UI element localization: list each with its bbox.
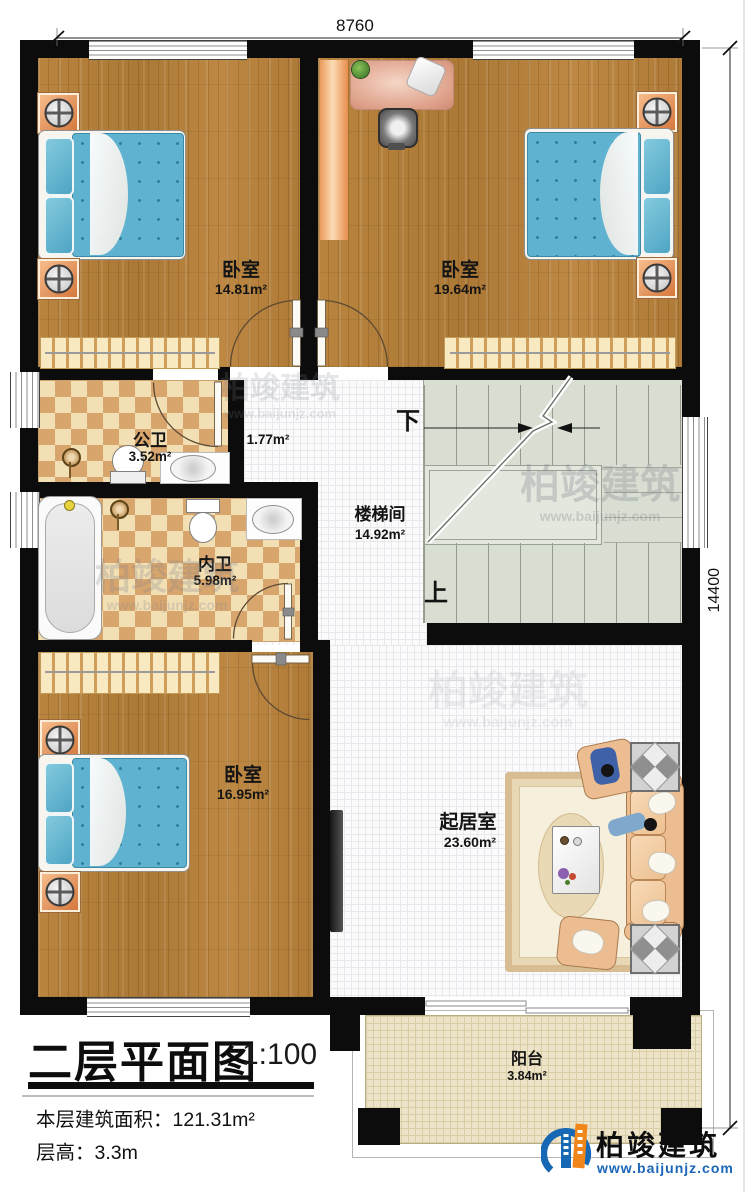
dimension-width: 8760 (336, 16, 374, 36)
flowers-icon (558, 868, 569, 879)
room-area-stairwell: 14.92m² (355, 528, 405, 542)
sink (170, 455, 216, 482)
wall (630, 997, 697, 1015)
stair-side-flight (604, 465, 682, 543)
nightstand (637, 258, 677, 298)
stairwell-area (423, 380, 683, 623)
room-label-public-bath: 公卫 (133, 432, 167, 449)
shower-head-icon (62, 448, 81, 467)
nightstand (637, 92, 677, 132)
side-table-top (630, 924, 681, 975)
room-label-bedroom3: 卧室 (224, 766, 262, 785)
brand-website: www.baijunjz.com (597, 1160, 734, 1176)
shower-head-icon (110, 500, 129, 519)
wardrobe-rail (45, 671, 216, 673)
floor-area-label: 本层建筑面积： (36, 1109, 173, 1131)
window (473, 40, 634, 60)
room-area-bedroom1: 14.81m² (215, 282, 267, 296)
lamp-icon (643, 98, 672, 127)
bathtub-basin (45, 503, 95, 633)
lamp-icon (46, 878, 75, 907)
sink (252, 505, 294, 534)
wardrobe-rail (450, 352, 671, 354)
window (682, 417, 708, 548)
wall (633, 1015, 691, 1049)
bed-pillow (44, 762, 74, 814)
cup-icon (560, 836, 569, 845)
wall (300, 482, 318, 652)
floor-height-value: 3.3m (95, 1142, 138, 1164)
wall (310, 640, 330, 652)
drawing-scale: 1:100 (242, 1038, 317, 1072)
shower-hose (117, 514, 119, 530)
room-label-inner-bath: 内卫 (198, 556, 232, 573)
lamp-icon (643, 264, 672, 293)
shower-hose (69, 462, 71, 478)
bed-mattress (72, 133, 184, 257)
wall (20, 640, 252, 652)
wall (300, 58, 318, 380)
side-table (630, 924, 680, 974)
brand-logo-icon (541, 1118, 593, 1188)
room-area-hallway: 1.77m² (247, 433, 290, 447)
room-label-stairwell: 楼梯间 (355, 506, 406, 523)
person-head (644, 818, 657, 831)
wall (358, 1108, 400, 1145)
floor-height-row: 层高：3.3m (36, 1136, 138, 1165)
bed-pillow (642, 137, 672, 196)
stair-landing (424, 465, 602, 545)
chair-base (388, 143, 405, 150)
stair-up-label: 上 (424, 582, 448, 606)
brand-name: 柏竣建筑 (596, 1124, 720, 1164)
wall (313, 652, 330, 997)
wall (20, 997, 87, 1015)
room-area-living: 23.60m² (444, 835, 496, 849)
wall (330, 997, 425, 1015)
wardrobe (40, 652, 220, 694)
bathtub-faucet-icon (64, 500, 75, 511)
lamp-icon (46, 726, 75, 755)
nightstand (38, 93, 79, 133)
room-area-balcony: 3.84m² (507, 1070, 547, 1083)
toilet-tank (110, 471, 146, 484)
side-table (630, 742, 680, 792)
title-rule-thick (28, 1082, 314, 1089)
bed-pillow (44, 137, 74, 196)
computer-chair (378, 108, 418, 148)
room-area-inner-bath: 5.98m² (194, 574, 237, 588)
floorplan-sheet: 卧室 14.81m² 卧室 19.64m² 公卫 3.52m² 1.77m² 内… (0, 0, 750, 1192)
tv (330, 810, 343, 932)
room-area-bedroom2: 19.64m² (434, 282, 486, 296)
wardrobe-rail (45, 352, 216, 354)
person-head (601, 764, 614, 777)
bed-pillow (44, 814, 74, 866)
wall (250, 997, 330, 1015)
room-area-bedroom3: 16.95m² (217, 787, 269, 801)
floor-area-value: 121.31m² (173, 1109, 255, 1131)
window (10, 492, 40, 548)
window (10, 372, 40, 428)
bed-pillow (642, 196, 672, 255)
room-label-balcony: 阳台 (511, 1052, 543, 1068)
bed-pillow (44, 196, 74, 255)
plant-icon (352, 61, 369, 78)
wardrobe (40, 337, 220, 369)
room-area-public-bath: 3.52m² (129, 450, 172, 464)
window (87, 997, 250, 1017)
cabinet (320, 60, 348, 240)
stair-down-label: 下 (396, 410, 420, 434)
wall (427, 623, 682, 645)
dimension-height: 14400 (706, 568, 724, 613)
floor-height-label: 层高： (36, 1142, 95, 1164)
title-rule-thin (22, 1095, 314, 1097)
room-label-bedroom1: 卧室 (222, 261, 260, 280)
wall (228, 380, 244, 482)
room-label-living: 起居室 (439, 813, 496, 832)
room-label-bedroom2: 卧室 (441, 261, 479, 280)
floor-area-row: 本层建筑面积：121.31m² (36, 1103, 255, 1132)
lamp-icon (44, 99, 73, 128)
toilet-tank (186, 499, 220, 513)
wall (330, 1015, 360, 1051)
stair-lower-flight (424, 543, 683, 623)
side-table-top (630, 742, 681, 793)
nightstand (40, 872, 80, 912)
toilet (189, 512, 217, 543)
stair-upper-flight (424, 385, 683, 465)
window (89, 40, 247, 60)
cup-icon (573, 837, 582, 846)
lamp-icon (44, 265, 73, 294)
page-title: 二层平面图 (28, 1026, 258, 1090)
nightstand (38, 259, 79, 299)
wardrobe (444, 337, 676, 369)
